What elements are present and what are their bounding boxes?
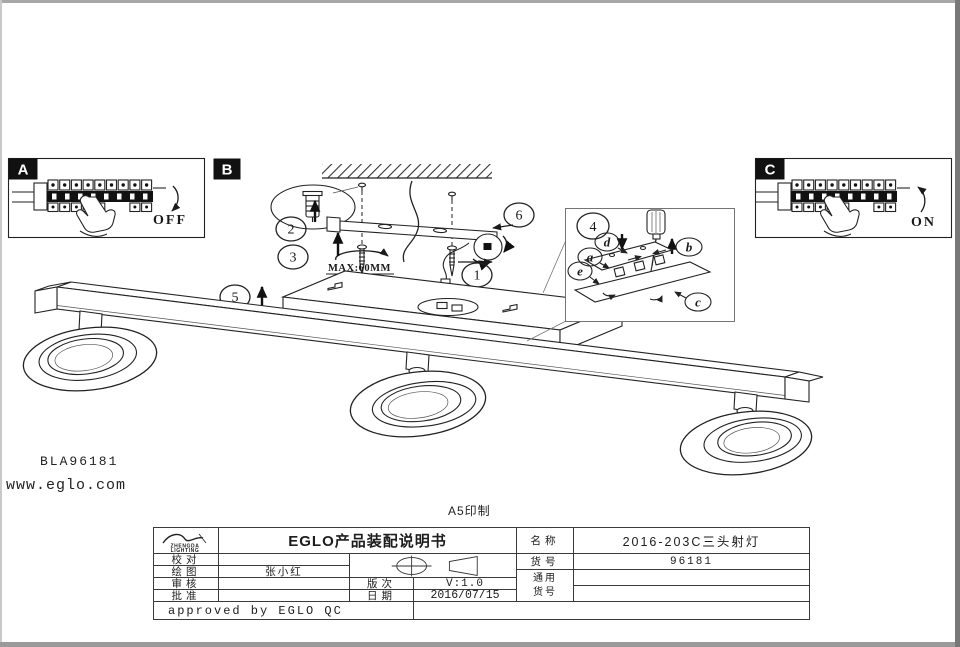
version-label: 版次 xyxy=(349,577,413,589)
page-edge-left xyxy=(0,0,2,647)
drawn-label: 绘图 xyxy=(154,565,218,577)
common-item-label: 通用 货号 xyxy=(516,569,573,601)
svg-text:e: e xyxy=(577,264,583,279)
step-6-badge: 6 xyxy=(493,203,534,228)
svg-text:4: 4 xyxy=(590,220,597,235)
product-name-value: 2016-203C三头射灯 xyxy=(573,528,809,553)
off-label: OFF xyxy=(153,213,187,228)
print-format-note: A5印制 xyxy=(448,502,491,519)
page-edge-bottom xyxy=(0,642,960,647)
approve-value xyxy=(218,589,349,601)
proofread-value xyxy=(218,553,349,565)
spotlight-right xyxy=(677,392,816,482)
website-text: www.eglo.com xyxy=(6,477,126,494)
panel-a-letter: A xyxy=(18,162,29,179)
page-edge-top xyxy=(0,0,960,3)
date-label: 日期 xyxy=(349,589,413,601)
svg-text:3: 3 xyxy=(290,251,297,266)
svg-text:d: d xyxy=(604,235,611,250)
ceiling-hatch xyxy=(322,164,492,178)
item-number-value: 96181 xyxy=(573,553,809,569)
mounting-bracket xyxy=(327,217,507,263)
item-label: 货号 xyxy=(516,553,573,569)
common-item-value-2 xyxy=(573,585,809,601)
name-label: 名称 xyxy=(516,528,573,553)
svg-text:1: 1 xyxy=(474,269,481,284)
approve-label: 批准 xyxy=(154,589,218,601)
supply-cable xyxy=(403,181,418,262)
panel-b-letter: B xyxy=(222,162,233,179)
svg-text:c: c xyxy=(695,295,701,310)
svg-text:a: a xyxy=(587,250,594,265)
common-item-label-line1: 通用 xyxy=(533,572,557,586)
approved-note: approved by EGLO QC xyxy=(154,601,413,619)
panel-c-letter: C xyxy=(765,162,776,179)
title-block: ZHENGDA LIGHTING EGLO产品装配说明书 校对 绘图 张小红 审… xyxy=(153,527,810,620)
projection-symbol xyxy=(349,553,516,577)
common-item-value-1 xyxy=(573,569,809,585)
switch-up-arrow-icon xyxy=(918,187,925,212)
svg-text:6: 6 xyxy=(516,209,523,224)
drawn-by-value: 张小红 xyxy=(218,565,349,577)
spotlight-left xyxy=(20,311,161,398)
drawing-code: BLA96181 xyxy=(40,454,118,469)
proofread-label: 校对 xyxy=(154,553,218,565)
step-1-badge: 1 xyxy=(458,262,492,287)
review-value xyxy=(218,577,349,589)
document-title: EGLO产品装配说明书 xyxy=(218,528,516,553)
svg-text:2: 2 xyxy=(288,223,295,238)
company-logo: ZHENGDA LIGHTING xyxy=(154,528,218,553)
third-angle-projection-icon xyxy=(350,554,516,578)
review-label: 审核 xyxy=(154,577,218,589)
panel-a: A OFF xyxy=(9,159,205,238)
spotlight-middle xyxy=(347,352,490,444)
zhengda-logo-icon: ZHENGDA LIGHTING xyxy=(155,529,217,553)
approved-note-extension xyxy=(413,601,809,619)
switch-down-arrow-icon xyxy=(172,186,178,211)
version-value: V:1.0 xyxy=(413,577,516,589)
panel-c: C ON xyxy=(756,159,952,238)
common-item-label-line2: 货号 xyxy=(533,586,557,600)
page-edge-right xyxy=(955,0,960,647)
svg-text:LIGHTING: LIGHTING xyxy=(171,548,200,553)
on-label: ON xyxy=(911,215,936,230)
instruction-sheet-page: A OFF C ON B xyxy=(0,0,960,647)
date-value: 2016/07/15 xyxy=(413,589,516,601)
svg-text:b: b xyxy=(686,240,693,255)
